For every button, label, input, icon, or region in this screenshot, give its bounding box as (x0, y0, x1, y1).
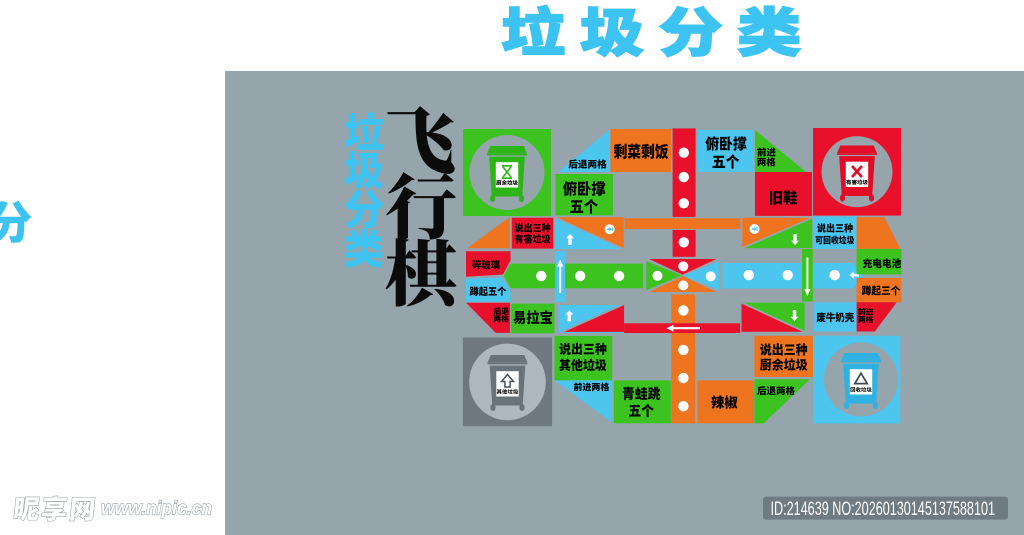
svg-text:ID:214639 NO:20260130145137588: ID:214639 NO:20260130145137588101 (771, 498, 996, 520)
svg-text:www.nipic.cn: www.nipic.cn (101, 498, 212, 520)
